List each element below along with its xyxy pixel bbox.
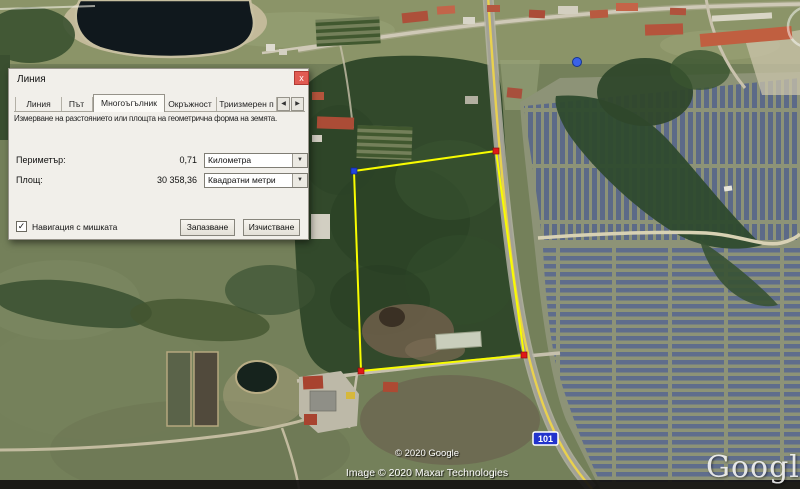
google-earth-watermark: Google e bbox=[706, 450, 800, 485]
perimeter-unit-select[interactable]: Километра ▼ bbox=[204, 153, 308, 168]
copyright-google: © 2020 Google bbox=[395, 448, 459, 459]
yellow-vehicle bbox=[346, 392, 355, 399]
perimeter-label: Периметър: bbox=[16, 155, 66, 165]
area-value: 30 358,36 bbox=[104, 175, 197, 185]
area-label: Площ: bbox=[16, 175, 43, 185]
perimeter-value: 0,71 bbox=[104, 155, 197, 165]
mouse-navigation-label: Навигация с мишката bbox=[32, 222, 117, 232]
tab-bar: Линия Път Многоъгълник Окръжност Триизме… bbox=[14, 94, 305, 112]
blue-placemark-icon[interactable] bbox=[573, 58, 582, 67]
road-101-shield: 101 bbox=[533, 432, 558, 445]
area-unit-value: Квадратни метри bbox=[208, 175, 276, 185]
bottom-edge-strip bbox=[0, 480, 800, 489]
road-101-label: 101 bbox=[538, 434, 553, 444]
vertex-point-blue[interactable] bbox=[351, 168, 357, 174]
area-unit-select[interactable]: Квадратни метри ▼ bbox=[204, 173, 308, 188]
copyright-imagery: Image © 2020 Maxar Technologies bbox=[346, 467, 508, 479]
close-button[interactable]: x bbox=[294, 71, 309, 85]
clear-button[interactable]: Изчистване bbox=[243, 219, 300, 236]
greenhouse bbox=[436, 331, 482, 349]
chevron-down-icon[interactable]: ▼ bbox=[292, 154, 307, 167]
vertex-point-red[interactable] bbox=[358, 368, 364, 374]
small-pond bbox=[236, 361, 278, 393]
tab-circle[interactable]: Окръжност bbox=[164, 97, 217, 111]
tab-line[interactable]: Линия bbox=[15, 97, 62, 111]
vertex-point-red[interactable] bbox=[521, 352, 527, 358]
tab-scroll-right-icon[interactable]: ▶ bbox=[291, 97, 304, 111]
tab-polygon[interactable]: Многоъгълник bbox=[93, 94, 165, 112]
google-earth-window: 101 © 2020 Google Image © 2020 Maxar Tec… bbox=[0, 0, 800, 489]
dialog-description: Измерване на разстоянието или площта на … bbox=[14, 114, 307, 123]
perimeter-unit-value: Километра bbox=[208, 155, 251, 165]
tab-scroll-left-icon[interactable]: ◀ bbox=[277, 97, 290, 111]
tab-path[interactable]: Път bbox=[61, 97, 93, 111]
dialog-title: Линия bbox=[17, 74, 46, 85]
chevron-down-icon[interactable]: ▼ bbox=[292, 174, 307, 187]
measure-dialog: Линия x Линия Път Многоъгълник Окръжност… bbox=[8, 68, 309, 240]
save-button[interactable]: Запазване bbox=[180, 219, 235, 236]
vertex-point-red[interactable] bbox=[493, 148, 499, 154]
tab-3d-path[interactable]: Триизмерен п bbox=[217, 97, 277, 111]
mouse-navigation-checkbox[interactable]: ✓ bbox=[16, 221, 27, 232]
